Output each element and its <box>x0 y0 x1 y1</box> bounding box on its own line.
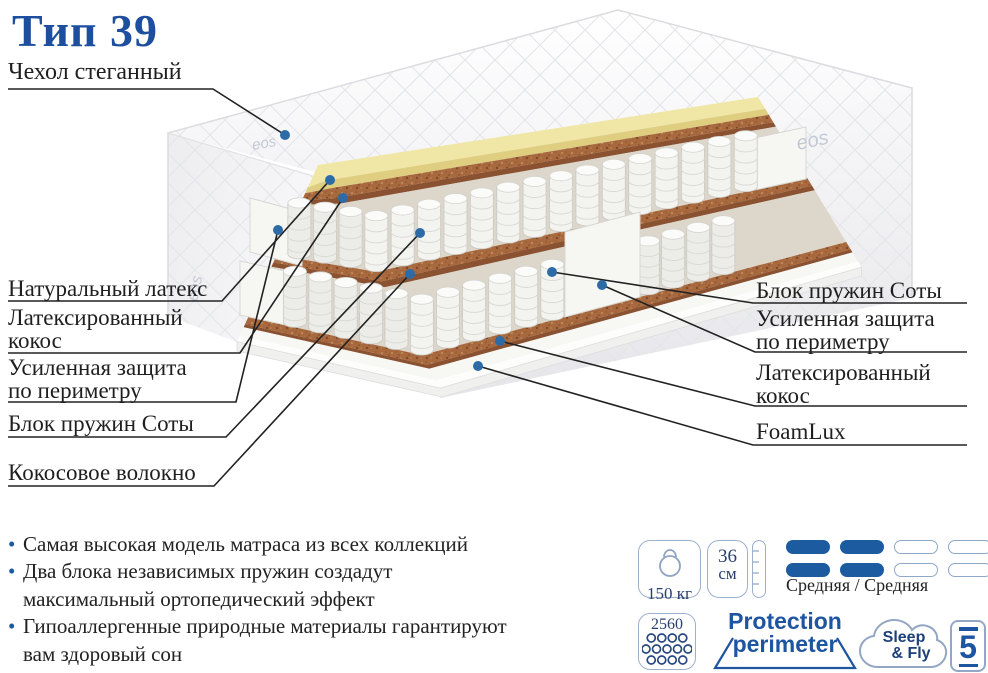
protection-perimeter-badge: Protection perimeter <box>705 606 865 672</box>
feature-item: • Гипоаллергенные природные материалы га… <box>8 613 628 668</box>
spring-coil <box>687 222 710 281</box>
callout-label-latex-coconut-right: Латексированный кокос <box>756 361 956 407</box>
max-load-value: 150 кг <box>639 584 700 604</box>
callout-label-natural-latex: Натуральный латекс <box>8 277 207 300</box>
brand-line2: & Fly <box>856 645 952 663</box>
callout-label-perimeter-right: Усиленная защита по периметру <box>756 307 956 353</box>
spring-coil <box>734 131 757 192</box>
callout-dot <box>495 336 505 346</box>
spring-coil <box>391 205 414 266</box>
firmness-pill <box>894 540 938 554</box>
callout-dot <box>597 280 607 290</box>
spring-coil <box>365 211 388 272</box>
bullet-icon: • <box>8 613 15 640</box>
callout-dot <box>547 267 557 277</box>
bullet-icon: • <box>8 531 15 558</box>
springs-count-badge: 2560 <box>638 613 696 670</box>
callout-dot <box>325 175 335 185</box>
mattress-height-badge: 36 см <box>707 540 748 598</box>
spring-coil <box>497 182 520 243</box>
callout-dot <box>473 361 483 371</box>
spring-coil <box>708 136 731 197</box>
spring-coil <box>410 294 433 355</box>
spring-coil <box>489 273 512 334</box>
callout-dot <box>405 269 415 279</box>
spring-coil <box>515 266 538 327</box>
spring-coil <box>444 194 467 255</box>
callout-label-latex-coconut-left: Латексированный кокос <box>8 306 208 352</box>
callout-dot <box>280 130 290 140</box>
springs-count-value: 2560 <box>639 617 695 632</box>
spring-coil <box>712 216 735 275</box>
spring-coil <box>309 272 332 333</box>
callout-label-coconut-fiber: Кокосовое волокно <box>8 461 196 484</box>
spring-coil <box>662 229 685 288</box>
warranty-years: 5 <box>952 629 984 666</box>
feature-item: • Два блока независимых пружин создадут … <box>8 558 628 613</box>
spring-coil <box>334 277 357 338</box>
callout-dot <box>273 225 283 235</box>
kettlebell-icon <box>653 543 687 577</box>
firmness-scale <box>786 540 986 578</box>
firmness-pill <box>786 540 830 554</box>
warranty-badge: 5 <box>950 620 986 672</box>
callout-label-spring-block-right: Блок пружин Соты <box>756 279 942 302</box>
spring-coil <box>283 266 306 327</box>
spring-coil <box>436 287 459 348</box>
spring-coil <box>523 176 546 237</box>
max-load-badge: 150 кг <box>638 540 701 598</box>
callout-label-perimeter-left: Усиленная защита по периметру <box>8 356 208 402</box>
spring-coil <box>681 142 704 203</box>
feature-list: • Самая высокая модель матраса из всех к… <box>8 531 628 668</box>
bullet-icon: • <box>8 558 15 585</box>
spring-coil <box>288 198 311 259</box>
protection-line2: perimeter <box>705 631 865 658</box>
spring-coil <box>313 202 336 263</box>
spring-coil <box>550 171 573 232</box>
spring-coil <box>470 188 493 249</box>
feature-item: • Самая высокая модель матраса из всех к… <box>8 531 628 558</box>
callout-label-foamlux: FoamLux <box>756 420 845 443</box>
height-unit: см <box>708 566 747 582</box>
firmness-pill <box>948 563 988 577</box>
firmness-pill <box>840 540 884 554</box>
firmness-pill <box>948 540 988 554</box>
spring-coil <box>655 148 678 209</box>
ruler-icon <box>752 540 766 598</box>
spring-coil <box>339 206 362 267</box>
callout-dot <box>415 228 425 238</box>
spring-coil <box>602 159 625 220</box>
callout-label-cover: Чехол стеганный <box>8 61 182 84</box>
spring-coil <box>576 165 599 226</box>
warranty-underline <box>959 664 978 667</box>
firmness-label: Средняя / Средняя <box>786 575 928 596</box>
spring-coil <box>463 280 486 341</box>
brand-badge: Sleep & Fly <box>856 616 952 672</box>
callout-label-spring-block-left: Блок пружин Соты <box>8 412 194 435</box>
page-title: Тип 39 <box>12 4 158 57</box>
callout-dot <box>338 193 348 203</box>
spring-coil <box>629 154 652 215</box>
springs-icon <box>642 632 692 666</box>
